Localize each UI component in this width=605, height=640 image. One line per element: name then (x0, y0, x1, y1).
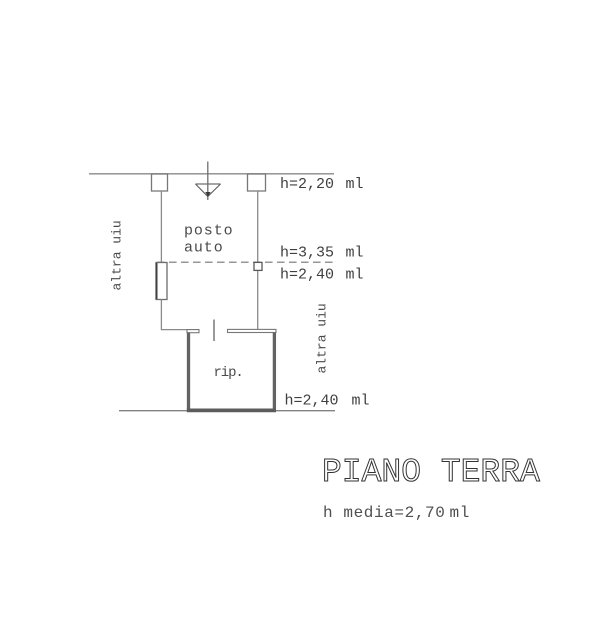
svg-text:altra uiu: altra uiu (315, 303, 330, 373)
svg-text:rip.: rip. (214, 365, 243, 381)
svg-text:posto: posto (184, 223, 234, 240)
svg-text:h=2,40ml: h=2,40ml (280, 267, 364, 284)
svg-text:h=2,20ml: h=2,20ml (280, 176, 364, 193)
svg-text:PIANO TERRA: PIANO TERRA (322, 454, 540, 491)
svg-text:h media=2,70ml: h media=2,70ml (323, 504, 470, 522)
svg-text:auto: auto (184, 240, 224, 257)
svg-text:altra uiu: altra uiu (110, 220, 125, 290)
svg-text:h=3,35ml: h=3,35ml (280, 245, 364, 262)
svg-text:h=2,40ml: h=2,40ml (285, 393, 370, 410)
